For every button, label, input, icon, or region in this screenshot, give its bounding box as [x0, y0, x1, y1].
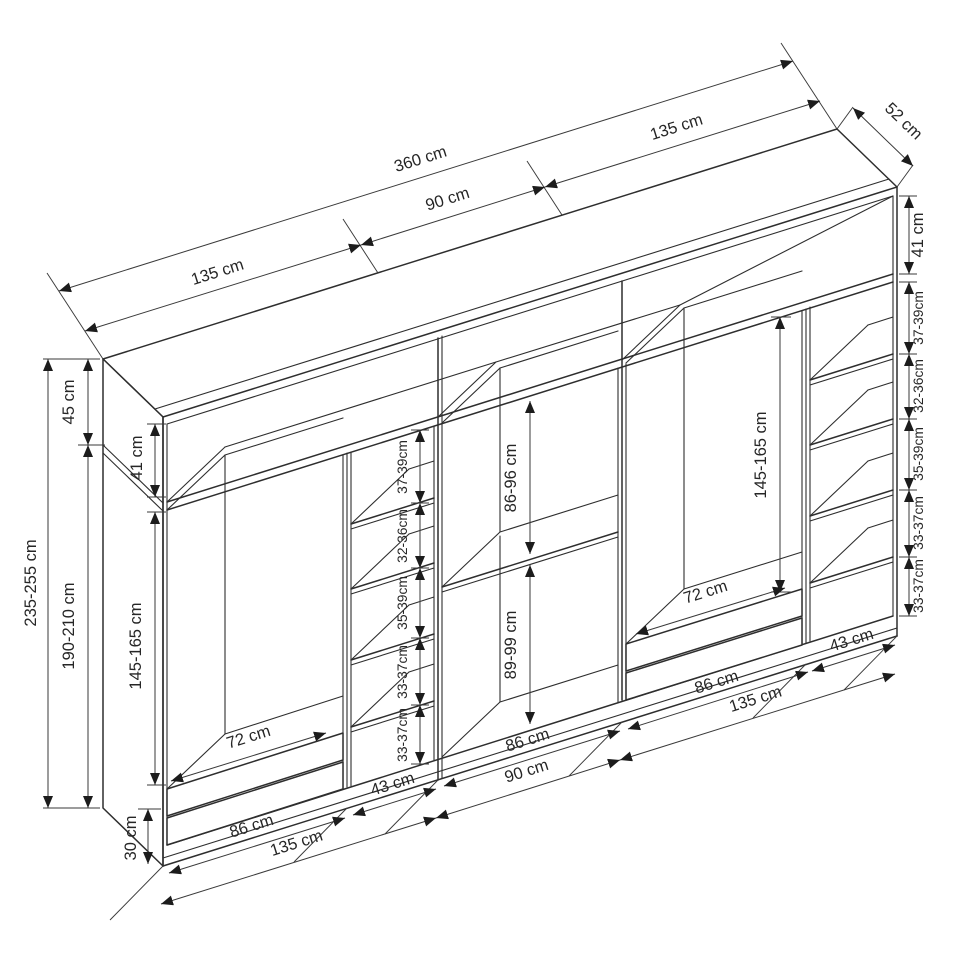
dim-label-middle-lower: 89-99 cm	[502, 611, 520, 680]
dim-label-right-gap-3: 35-39cm	[911, 427, 926, 481]
dim-label-plinth-height: 30 cm	[122, 816, 140, 861]
dim-label-leftcol-gap-3: 35-39cm	[395, 576, 410, 630]
dim-label-leftcol-gap-1: 37-39cm	[395, 440, 410, 494]
dim-label-left-hanging-height: 145-165 cm	[127, 602, 145, 689]
dim-label-bottom-middle-interior: 86 cm	[503, 725, 551, 756]
dim-label-total-height: 235-255 cm	[22, 539, 40, 626]
dim-label-leftcol-gap-2: 32-36cm	[395, 509, 410, 563]
dim-label-right-gap-5: 33-37cm	[911, 559, 926, 613]
left-shelf-column	[351, 461, 434, 732]
dim-label-right-rod-width: 72 cm	[681, 577, 729, 608]
dim-label-leftcol-gap-5: 33-37cm	[395, 708, 410, 762]
dim-label-top-right-section: 135 cm	[648, 111, 705, 144]
dim-right-stack: 41 cm 37-39cm 32-36cm 35-39cm 33-37cm 33…	[899, 196, 927, 616]
dim-label-carcass-height: 190-210 cm	[60, 582, 78, 669]
dim-left-shelf-gaps: 37-39cm 32-36cm 35-39cm 33-37cm 33-37cm	[395, 430, 429, 764]
dim-label-middle-upper: 86-96 cm	[502, 444, 520, 513]
right-shelf-column	[810, 317, 893, 588]
dim-label-right-topbox: 41 cm	[909, 213, 927, 258]
dim-label-top-total: 360 cm	[392, 143, 449, 176]
dim-label-right-hanging-height: 145-165 cm	[752, 411, 770, 498]
wardrobe-technical-drawing: 135 cm 360 cm 90 cm 135 cm 52 cm	[0, 0, 960, 960]
dim-label-depth: 52 cm	[881, 99, 926, 143]
diagram-page: 135 cm 360 cm 90 cm 135 cm 52 cm	[0, 0, 960, 960]
dim-label-leftcol-gap-4: 33-37cm	[395, 645, 410, 699]
dim-label-right-gap-4: 33-37cm	[911, 496, 926, 550]
dim-label-left-topbox-interior: 41 cm	[128, 436, 146, 481]
right-hanging-compartment	[626, 271, 802, 700]
dim-right-interior: 145-165 cm 72 cm	[636, 317, 791, 634]
dim-label-top-middle-section: 90 cm	[423, 184, 471, 215]
dim-label-topbox-height: 45 cm	[60, 380, 78, 425]
dim-label-right-gap-1: 37-39cm	[911, 291, 926, 345]
dim-label-right-gap-2: 32-36cm	[911, 359, 926, 413]
dim-middle-interior: 86-96 cm 89-99 cm	[502, 401, 530, 724]
